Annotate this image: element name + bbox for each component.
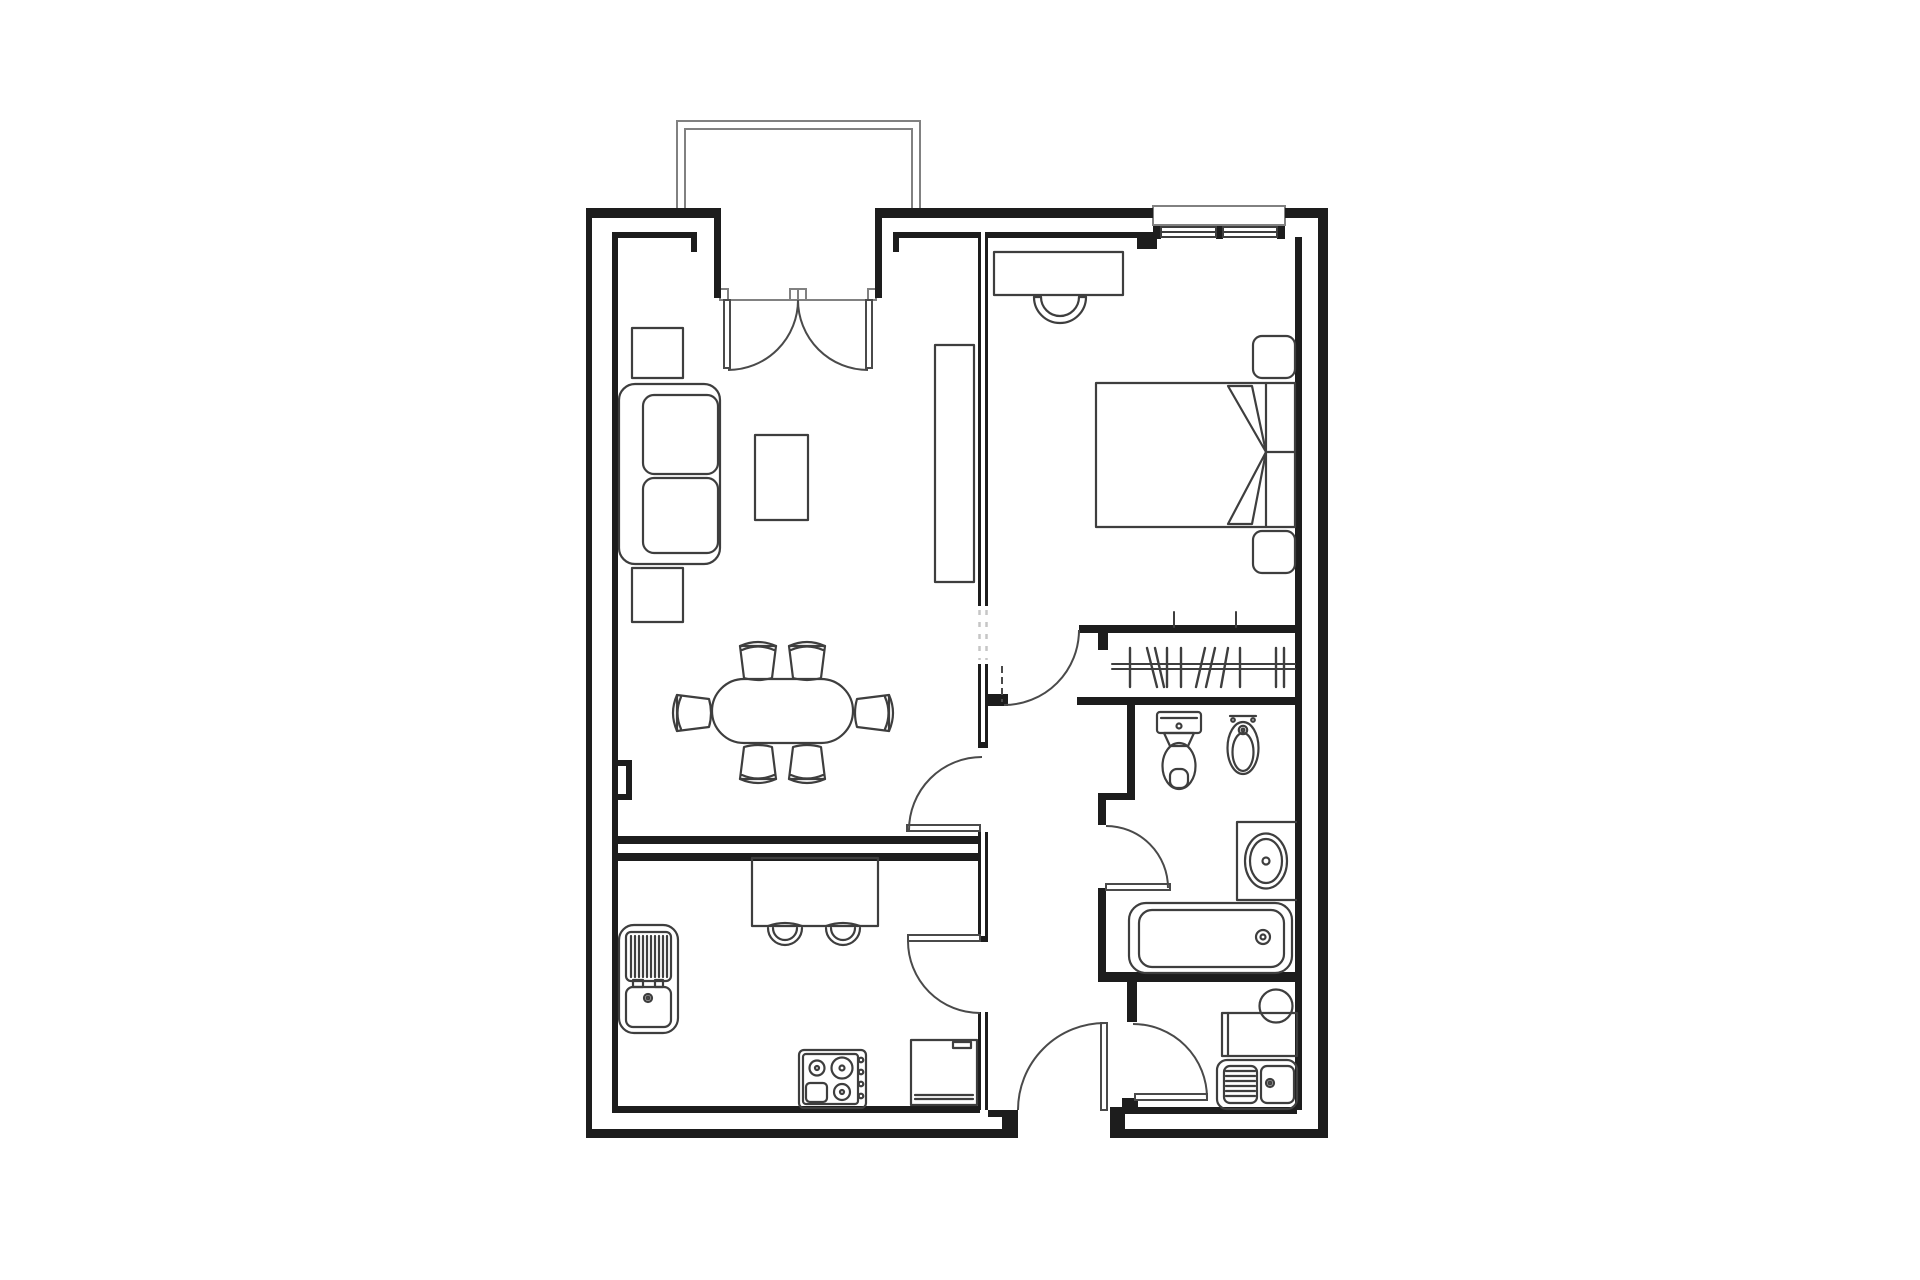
door-jamb-right — [868, 289, 876, 300]
door-jamb-left — [720, 289, 728, 300]
floor-plan-canvas — [0, 0, 1920, 1280]
watermark-artifact — [948, 606, 1014, 664]
door-center-post — [798, 289, 806, 300]
door-center-post — [790, 289, 798, 300]
window-sill — [1153, 206, 1285, 225]
floor-plan-drawing — [0, 0, 1920, 1280]
